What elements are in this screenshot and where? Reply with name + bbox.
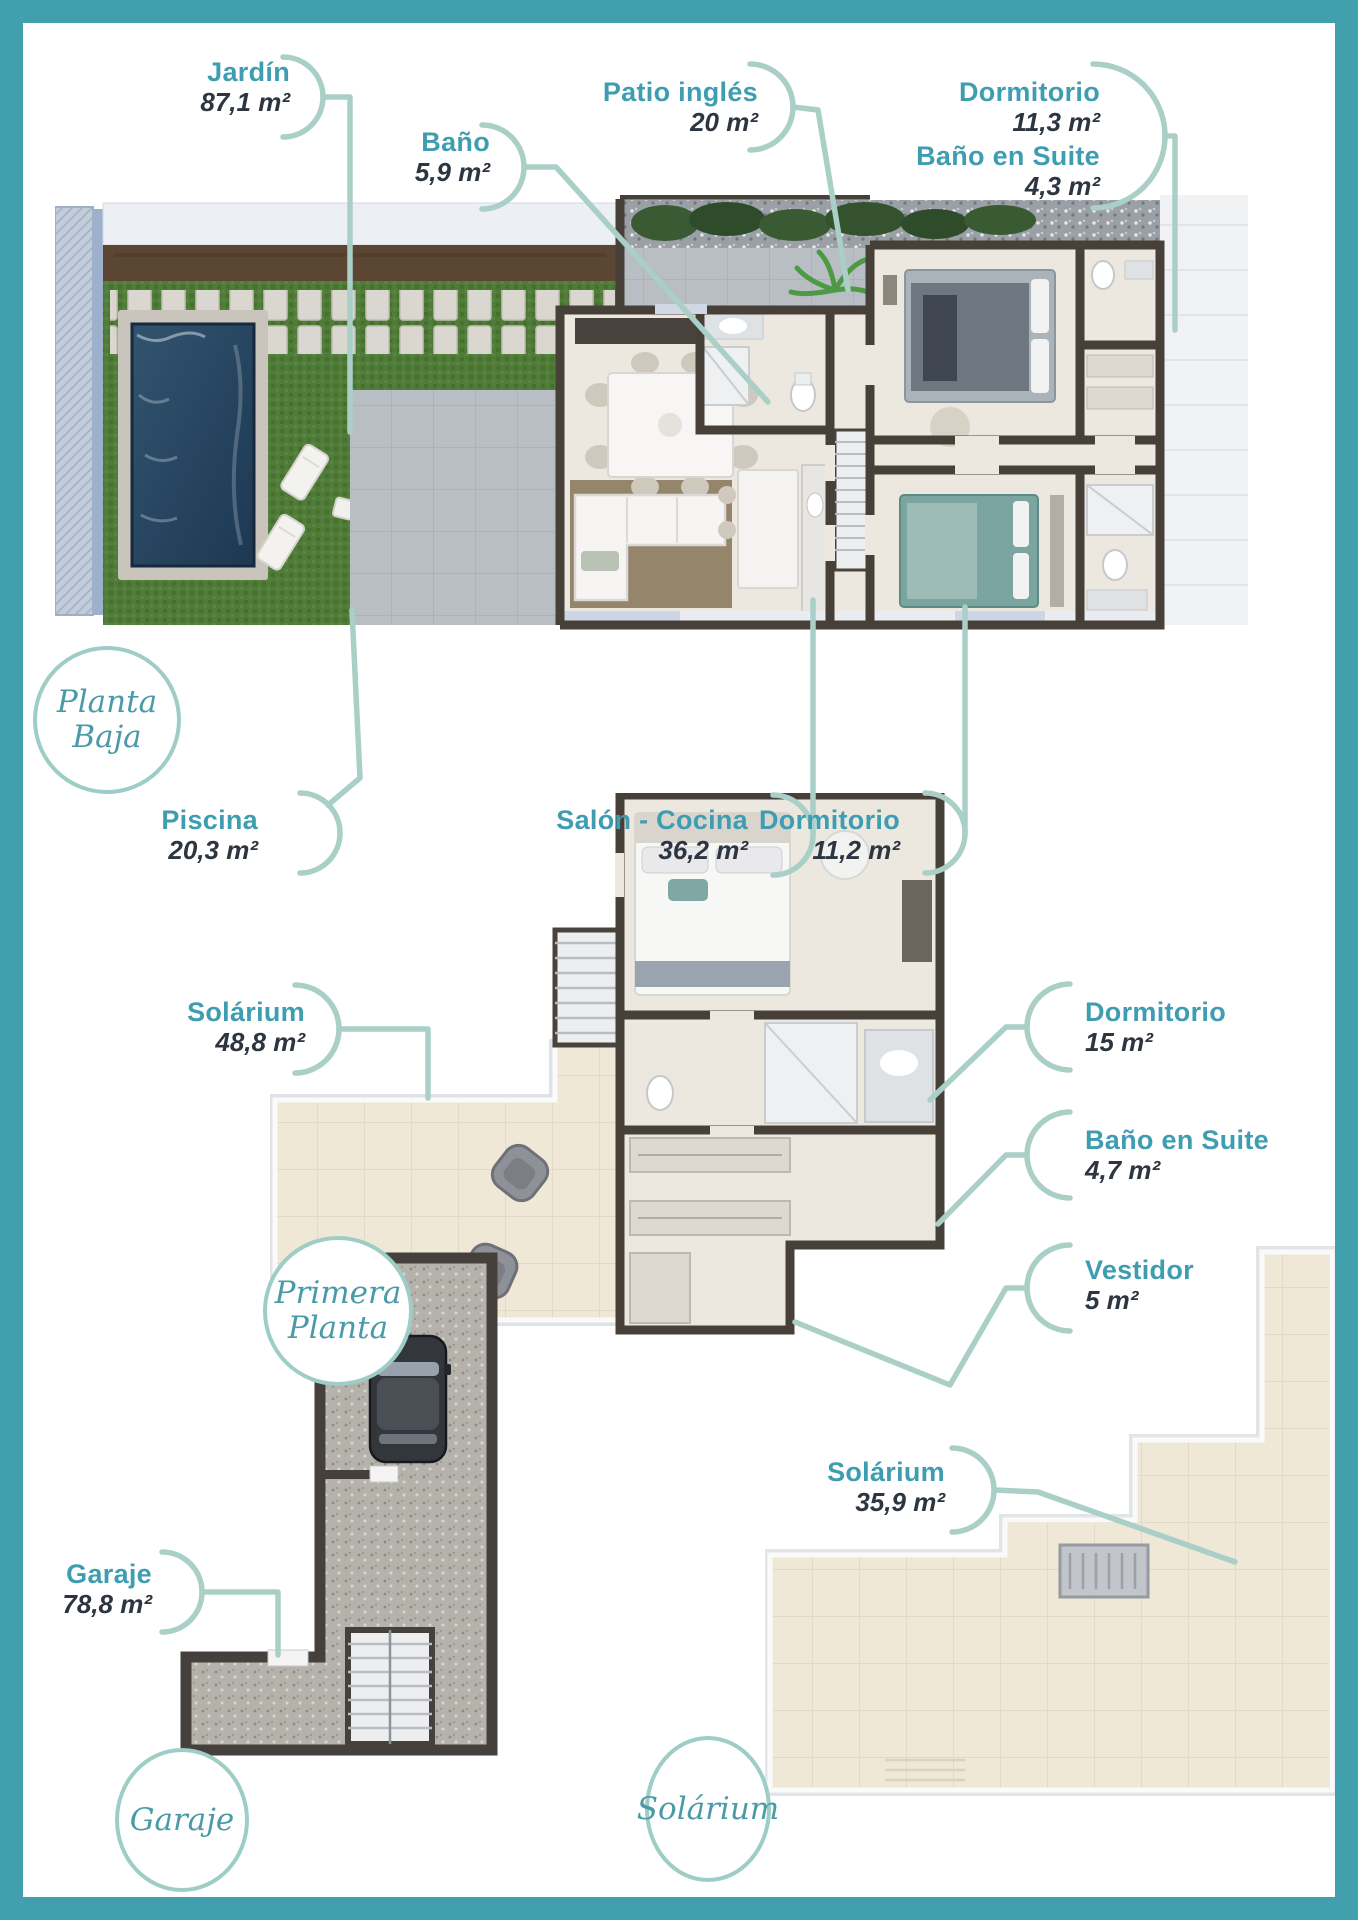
arc-d1 <box>1093 64 1165 208</box>
arc-d2 <box>925 793 965 873</box>
room-name: Garaje <box>62 1560 152 1588</box>
room-area: 20 m² <box>603 109 758 136</box>
room-name: Dormitorio <box>959 78 1100 106</box>
label-dormitorio-1: Dormitorio 11,3 m² <box>959 78 1100 137</box>
badge-primera-planta: PrimeraPlanta <box>263 1236 413 1386</box>
arc-bs2 <box>1027 1112 1070 1198</box>
room-name: Piscina <box>161 806 258 834</box>
badge-garaje: Garaje <box>115 1748 249 1892</box>
label-salon-cocina: Salón - Cocina 36,2 m² <box>556 806 748 865</box>
room-name: Dormitorio <box>759 806 900 834</box>
label-piscina: Piscina 20,3 m² <box>161 806 258 865</box>
room-name: Jardín <box>200 58 290 86</box>
label-garaje: Garaje 78,8 m² <box>62 1560 152 1619</box>
label-patio-ingles: Patio inglés 20 m² <box>603 78 758 137</box>
arc-s2 <box>952 1448 994 1532</box>
floorplan-page: Jardín 87,1 m² Baño 5,9 m² Patio inglés … <box>0 0 1358 1920</box>
label-vestidor: Vestidor 5 m² <box>1085 1256 1194 1315</box>
room-name: Patio inglés <box>603 78 758 106</box>
room-name: Dormitorio <box>1085 998 1226 1026</box>
room-name: Baño en Suite <box>1085 1126 1269 1154</box>
room-name: Baño en Suite <box>916 142 1100 170</box>
room-area: 78,8 m² <box>62 1591 152 1618</box>
room-name: Baño <box>415 128 490 156</box>
room-area: 4,3 m² <box>916 173 1100 200</box>
room-area: 5 m² <box>1085 1287 1194 1314</box>
room-area: 48,8 m² <box>187 1029 305 1056</box>
room-area: 11,2 m² <box>759 837 900 864</box>
room-area: 20,3 m² <box>161 837 258 864</box>
room-name: Vestidor <box>1085 1256 1194 1284</box>
room-area: 87,1 m² <box>200 89 290 116</box>
badge-planta-baja: PlantaBaja <box>33 646 181 794</box>
badge-solarium: Solárium <box>645 1736 771 1882</box>
label-solarium-1: Solárium 48,8 m² <box>187 998 305 1057</box>
room-area: 35,9 m² <box>827 1489 945 1516</box>
callout-lines <box>0 0 1358 1920</box>
room-name: Solárium <box>827 1458 945 1486</box>
room-name: Salón - Cocina <box>556 806 748 834</box>
room-area: 5,9 m² <box>415 159 490 186</box>
arc-pi <box>300 793 340 873</box>
arc-g <box>162 1552 202 1632</box>
label-dormitorio-3: Dormitorio 15 m² <box>1085 998 1226 1057</box>
room-area: 36,2 m² <box>556 837 748 864</box>
label-bano-suite-1: Baño en Suite 4,3 m² <box>916 142 1100 201</box>
room-name: Solárium <box>187 998 305 1026</box>
label-bano-suite-2: Baño en Suite 4,7 m² <box>1085 1126 1269 1185</box>
label-jardin: Jardín 87,1 m² <box>200 58 290 117</box>
label-solarium-2: Solárium 35,9 m² <box>827 1458 945 1517</box>
label-bano: Baño 5,9 m² <box>415 128 490 187</box>
room-area: 11,3 m² <box>959 109 1100 136</box>
label-dormitorio-2: Dormitorio 11,2 m² <box>759 806 900 865</box>
room-area: 15 m² <box>1085 1029 1226 1056</box>
room-area: 4,7 m² <box>1085 1157 1269 1184</box>
arc-v <box>1027 1245 1070 1331</box>
arc-d3 <box>1027 984 1070 1070</box>
